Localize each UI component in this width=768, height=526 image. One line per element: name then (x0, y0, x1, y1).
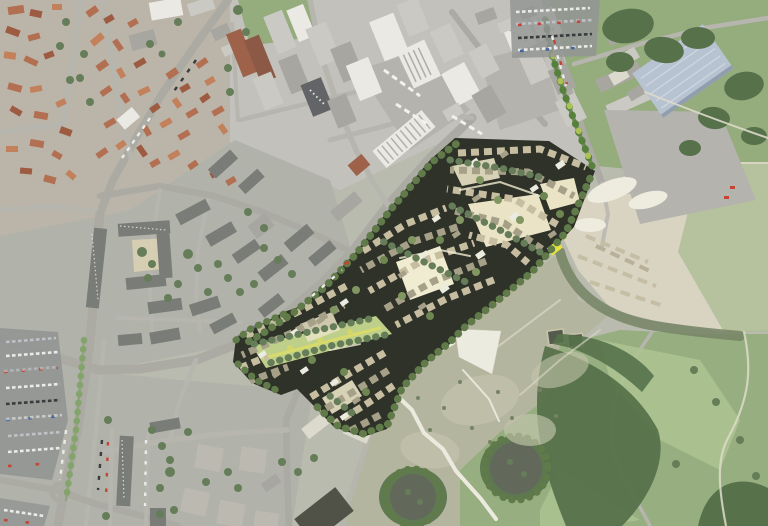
aerial-photo (0, 0, 768, 526)
haze-overlay (0, 0, 768, 526)
aerial-scene (0, 0, 768, 526)
